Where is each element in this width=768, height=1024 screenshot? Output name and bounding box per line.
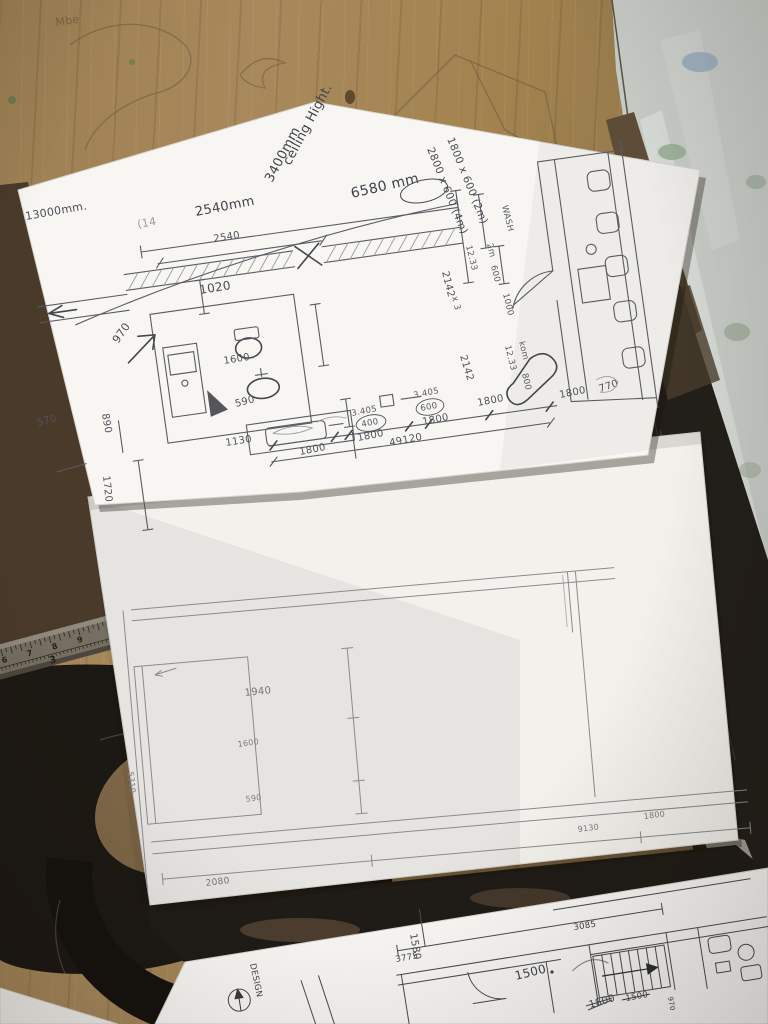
wood-knot xyxy=(345,90,355,104)
blue-paint-smudge xyxy=(682,52,718,72)
green-paint-dab xyxy=(8,96,16,104)
green-paint-smudge xyxy=(746,175,766,189)
paper-corner xyxy=(0,988,118,1024)
green-paint-smudge xyxy=(739,462,761,478)
photo-of-floor-plan-sketches: Mbe xyxy=(0,0,768,1024)
green-paint-smudge xyxy=(724,323,750,341)
green-paint-dab xyxy=(129,59,135,65)
degree-dot xyxy=(550,970,553,973)
wood-graffiti-text: Mbe xyxy=(55,13,81,29)
scene-svg: Mbe xyxy=(0,0,768,1024)
green-paint-smudge xyxy=(658,144,686,160)
